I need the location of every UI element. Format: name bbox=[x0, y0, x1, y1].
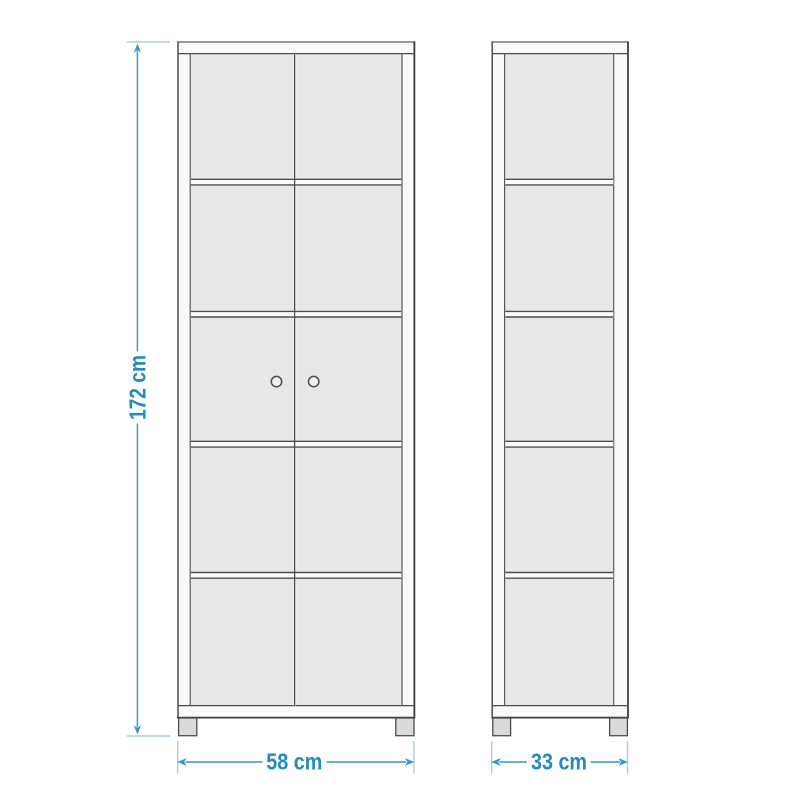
svg-text:172 cm: 172 cm bbox=[124, 355, 150, 420]
svg-text:58 cm: 58 cm bbox=[266, 749, 322, 775]
svg-text:33 cm: 33 cm bbox=[531, 749, 587, 775]
